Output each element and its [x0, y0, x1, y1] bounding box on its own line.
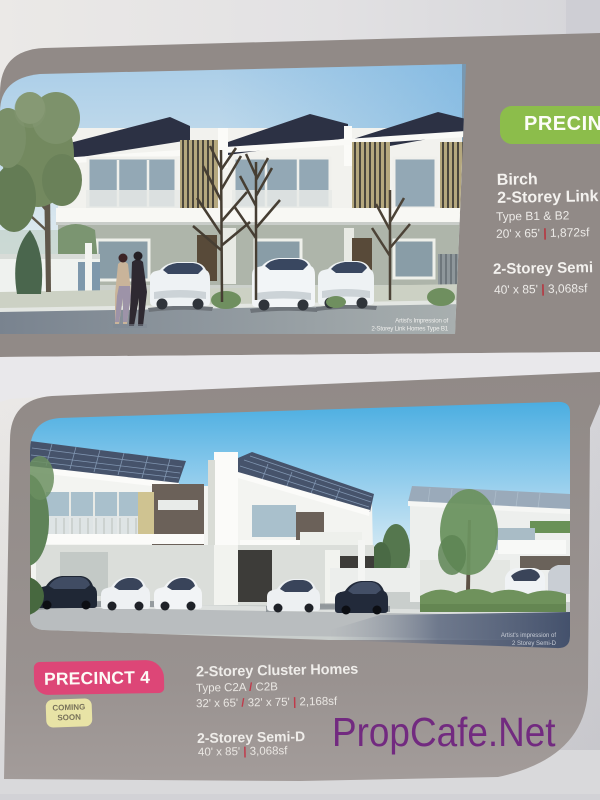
- svg-text:Artist's Impression of: Artist's Impression of: [395, 318, 448, 325]
- svg-text:2-Storey Link Homes Type B1: 2-Storey Link Homes Type B1: [371, 326, 448, 333]
- svg-text:2 Storey Semi-D: 2 Storey Semi-D: [512, 641, 557, 647]
- svg-text:Artist's impression of: Artist's impression of: [501, 633, 556, 639]
